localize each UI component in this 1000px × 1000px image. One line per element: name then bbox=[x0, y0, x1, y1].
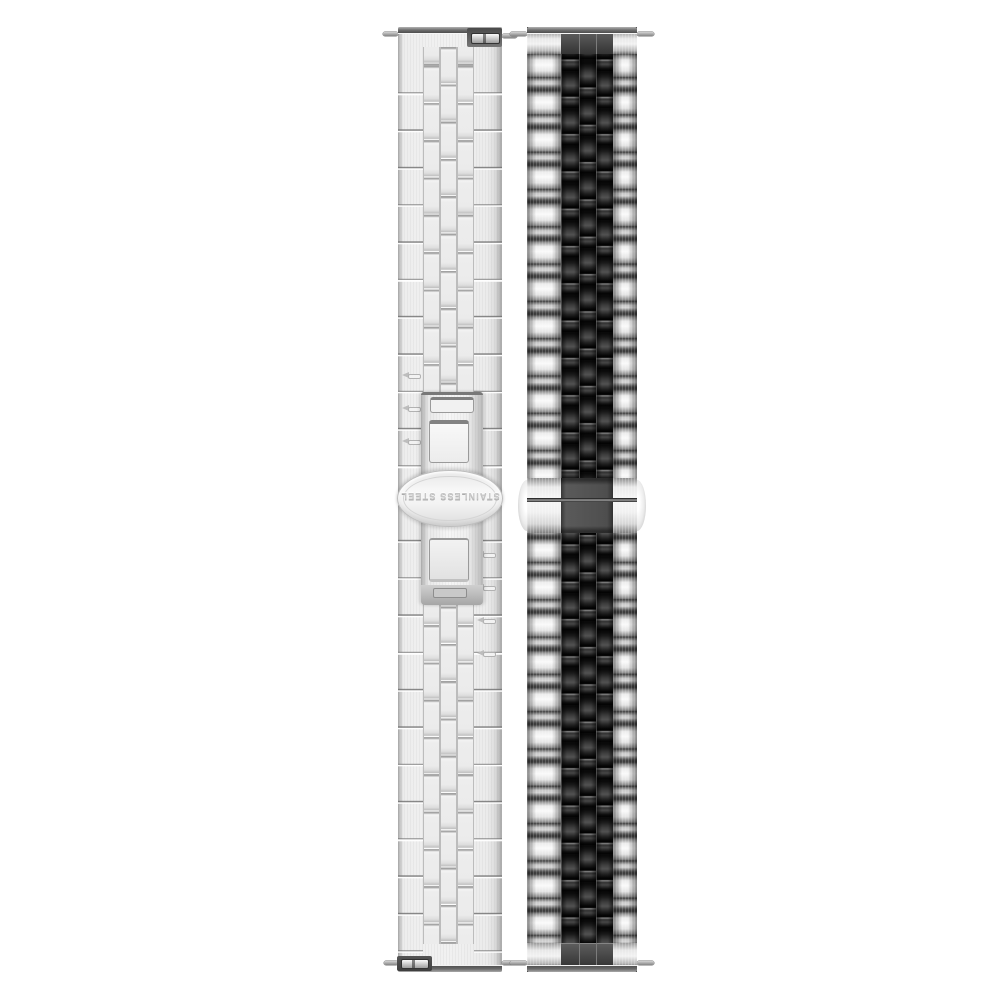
link-removal-arrow-icon bbox=[477, 650, 496, 657]
link-divider bbox=[596, 943, 597, 967]
clasp-window-small-bottom bbox=[433, 588, 467, 598]
end-link-silver bbox=[527, 943, 561, 967]
link-removal-arrow-icon bbox=[402, 438, 421, 445]
end-link bbox=[527, 32, 637, 54]
product-photo: STAINLESS STEEL bbox=[0, 0, 1000, 1000]
end-link-silver bbox=[613, 943, 637, 967]
arrow-shaft bbox=[408, 440, 421, 445]
quick-release-lever bbox=[467, 28, 502, 47]
clasp-panel-center bbox=[561, 478, 613, 533]
quick-release-slider bbox=[471, 33, 500, 44]
clasp-cover: STAINLESS STEEL bbox=[397, 470, 503, 527]
end-link-black-center bbox=[561, 32, 613, 54]
link-divider bbox=[596, 32, 597, 54]
link-divider bbox=[579, 943, 580, 967]
end-link-silver bbox=[527, 32, 561, 54]
clasp-window-large-top bbox=[429, 420, 469, 463]
watch-band-silver-back: STAINLESS STEEL bbox=[398, 27, 502, 972]
clasp-panel-silver bbox=[613, 478, 637, 533]
end-link bbox=[527, 943, 637, 967]
spring-bar-pin bbox=[384, 961, 398, 965]
link-removal-arrow-icon bbox=[477, 617, 496, 624]
spring-bar-pin bbox=[510, 961, 527, 965]
arrow-shaft bbox=[483, 553, 496, 558]
end-cap bbox=[527, 27, 637, 33]
clasp-section bbox=[527, 478, 637, 533]
clasp-engraving-text: STAINLESS STEEL bbox=[398, 491, 502, 501]
spring-bar-pin bbox=[637, 961, 654, 965]
spring-bar-pin bbox=[510, 32, 527, 36]
end-link-black-center bbox=[561, 943, 613, 967]
quick-release-slider bbox=[401, 959, 429, 969]
link-removal-arrow-icon bbox=[402, 372, 421, 379]
end-link-silver bbox=[613, 32, 637, 54]
arrow-shaft bbox=[483, 652, 496, 657]
arrow-shaft bbox=[483, 619, 496, 624]
clasp-arm-tip bbox=[421, 585, 483, 605]
arrow-shaft bbox=[483, 586, 496, 591]
link-divider bbox=[579, 32, 580, 54]
arrow-shaft bbox=[408, 407, 421, 412]
spring-bar-pin bbox=[383, 32, 398, 36]
clasp-window-large-bottom bbox=[429, 538, 469, 582]
end-cap bbox=[527, 966, 637, 972]
watch-band-silver-black-front bbox=[527, 27, 637, 972]
clasp-seam-line bbox=[527, 498, 637, 502]
clasp-panel-silver bbox=[527, 478, 561, 533]
quick-release-lever bbox=[397, 956, 432, 971]
spring-bar-pin bbox=[637, 32, 654, 36]
arrow-shaft bbox=[408, 374, 421, 379]
link-removal-arrow-icon bbox=[402, 405, 421, 412]
clasp-window-small-top bbox=[430, 397, 474, 413]
